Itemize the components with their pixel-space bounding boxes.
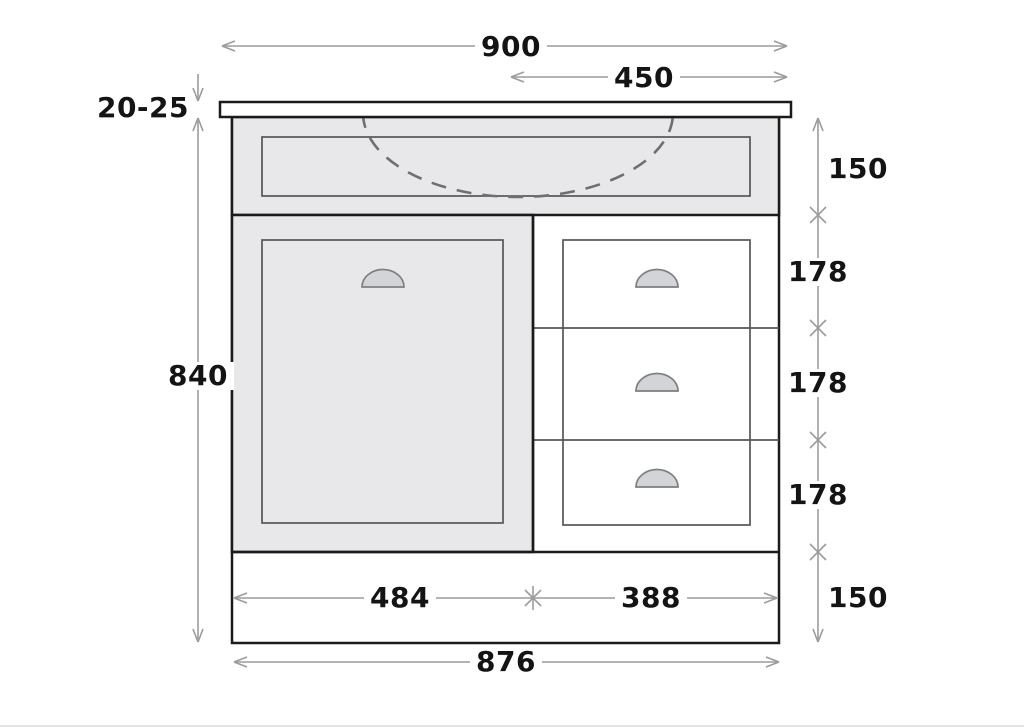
dim-label-door-width: 484 xyxy=(364,584,436,612)
dim-label-drawer-3-height: 178 xyxy=(782,481,854,509)
dim-label-basin-offset: 450 xyxy=(608,64,680,92)
apron-panel xyxy=(232,117,779,215)
dim-label-drawer-1-height: 178 xyxy=(782,258,854,286)
drawing-canvas: 900 450 20-25 840 150 178 178 178 150 48… xyxy=(0,0,1024,728)
dim-label-cabinet-height: 840 xyxy=(162,362,234,390)
dim-label-drawer-2-height: 178 xyxy=(782,369,854,397)
countertop xyxy=(220,102,791,117)
dim-label-plinth-height: 150 xyxy=(826,584,890,612)
door-panel xyxy=(232,215,533,552)
page-bottom-divider xyxy=(0,725,1024,727)
dim-label-overall-width: 900 xyxy=(475,33,547,61)
dim-label-drawer-bank-width: 388 xyxy=(615,584,687,612)
dim-label-carcass-width: 876 xyxy=(470,648,542,676)
dim-label-apron-height: 150 xyxy=(826,155,890,183)
dim-label-top-thickness: 20-25 xyxy=(91,94,195,122)
